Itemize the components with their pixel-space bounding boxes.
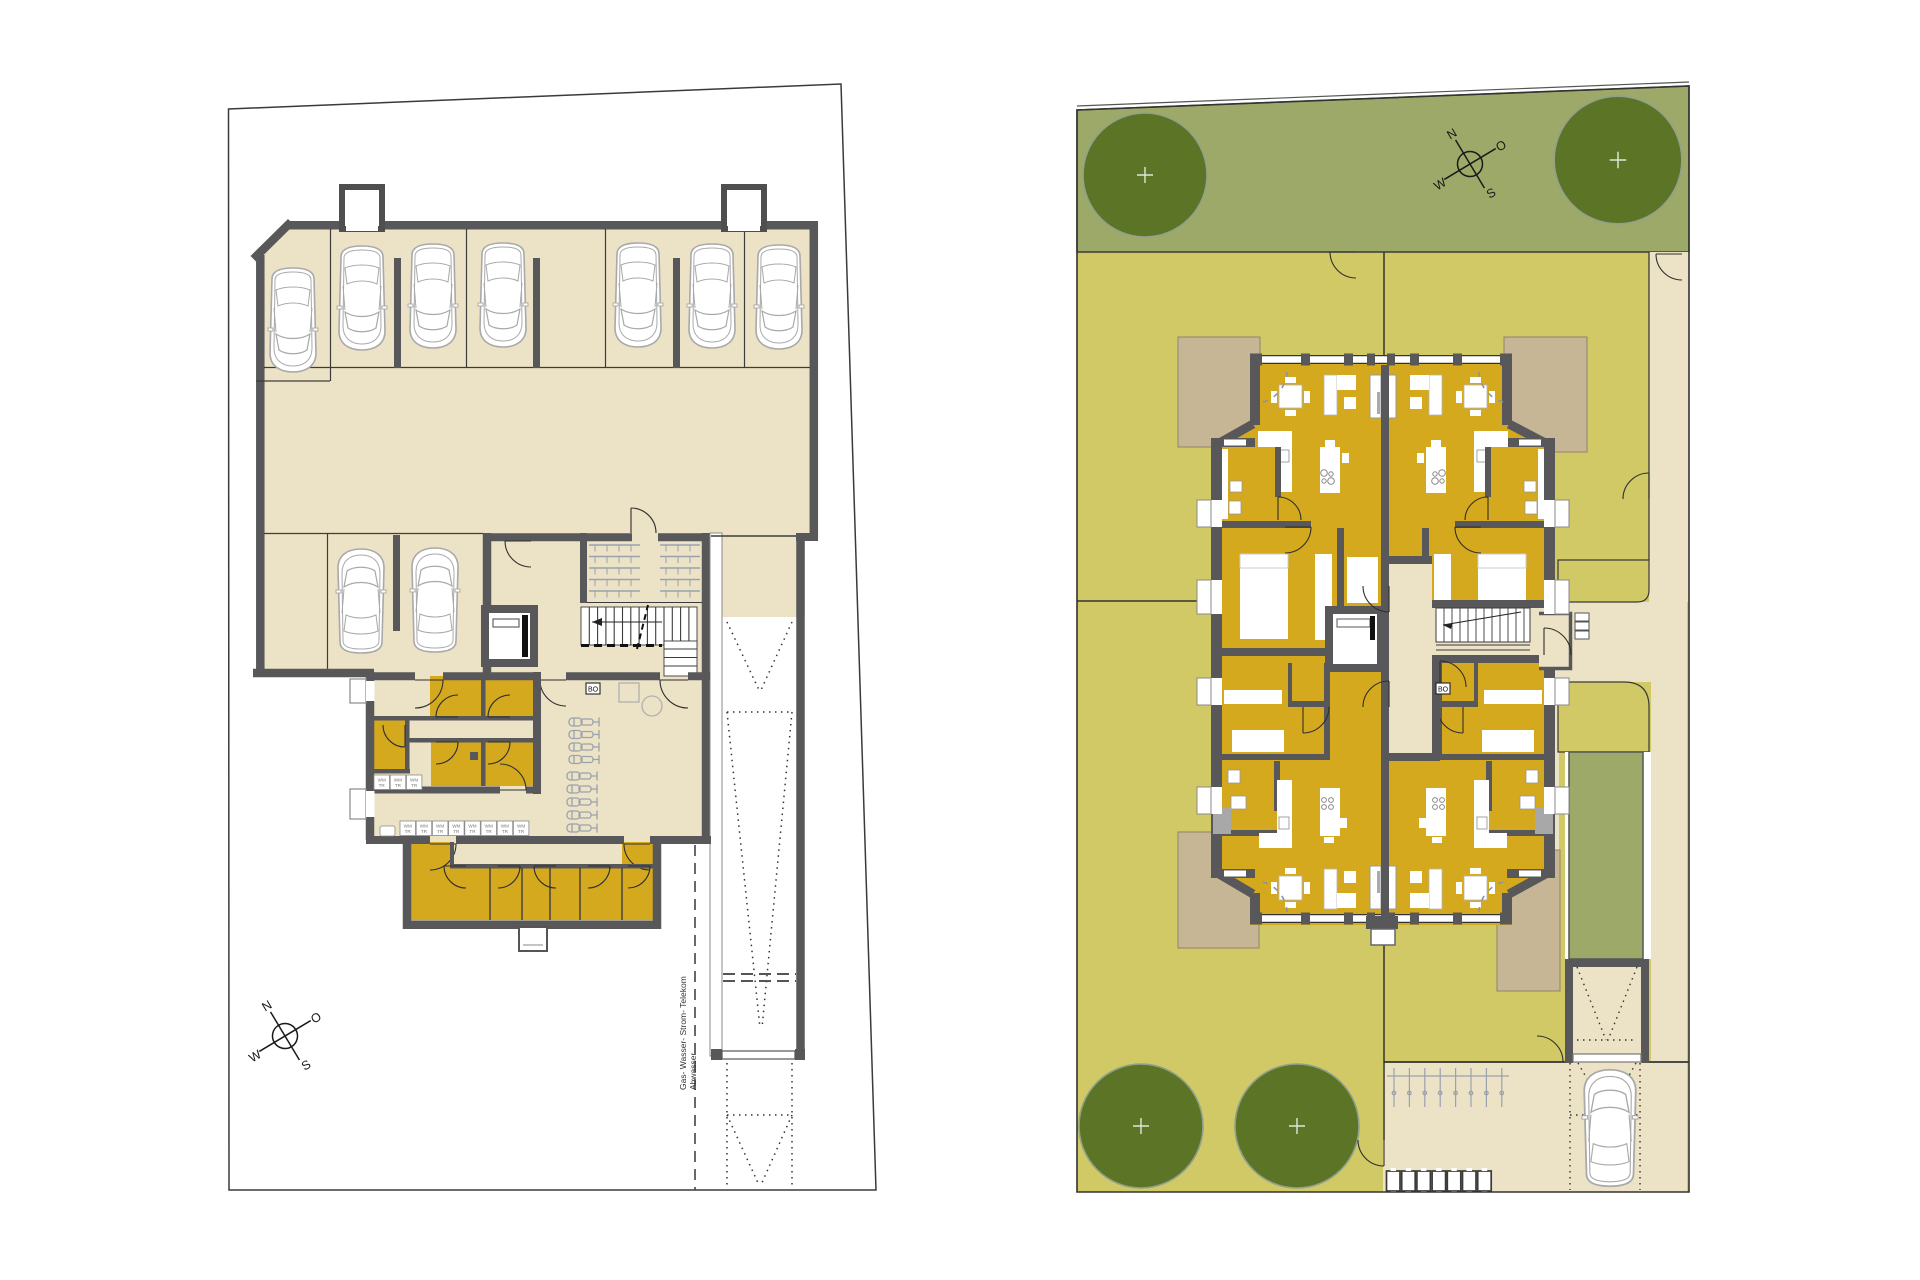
svg-text:Gas- Wasser- Strom- Telekom: Gas- Wasser- Strom- Telekom bbox=[678, 976, 688, 1090]
svg-text:Abwasser: Abwasser bbox=[688, 1053, 698, 1090]
svg-text:BO: BO bbox=[1438, 687, 1449, 694]
svg-text:BO: BO bbox=[588, 687, 599, 694]
